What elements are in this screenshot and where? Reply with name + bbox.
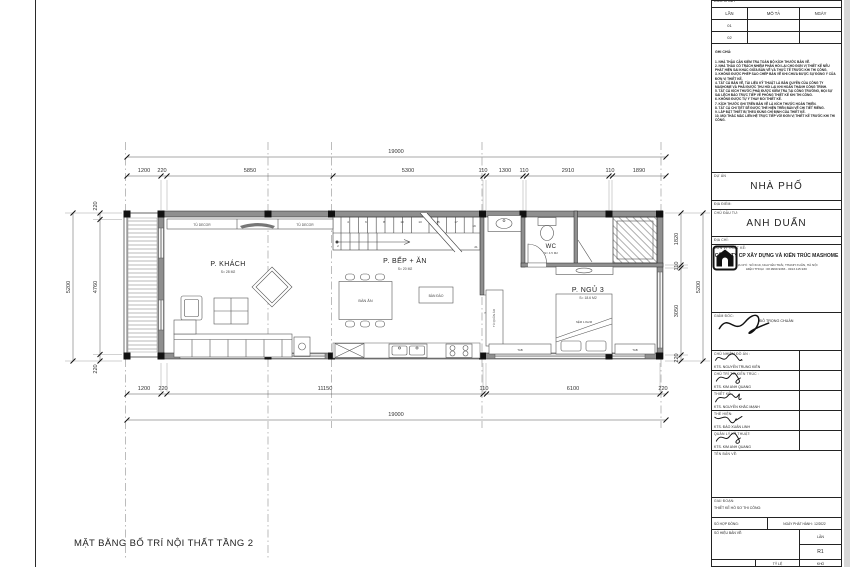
revision-1-ngay bbox=[800, 20, 841, 31]
staff-row-1: CHỦ TRÌ T.K KIẾN TRÚC : KTS. KIM ANH QUA… bbox=[712, 371, 841, 391]
project-name: NHÀ PHỐ bbox=[712, 173, 841, 200]
stair-num: 19 bbox=[472, 224, 476, 228]
stair-num: 10 bbox=[400, 220, 404, 224]
dim: 2910 bbox=[562, 168, 574, 174]
stairs bbox=[333, 213, 480, 252]
revision-caption-row: ĐIỀU CHỈNH bbox=[712, 1, 841, 8]
stair-num: 15 bbox=[436, 220, 440, 224]
kitchen-furniture bbox=[333, 274, 480, 358]
company-logo bbox=[712, 245, 738, 271]
revision-header-row: LẦN MÔ TẢ NGÀY bbox=[712, 8, 841, 20]
dim: 110 bbox=[606, 168, 615, 174]
dim-top-overall: 19000 bbox=[388, 149, 404, 155]
console bbox=[556, 267, 613, 275]
dim: 5200 bbox=[66, 281, 72, 293]
label-tu-quan-ao: TỦ QUẦN ÁO bbox=[491, 308, 496, 327]
dim: 220 bbox=[93, 201, 99, 210]
balcony bbox=[124, 211, 158, 359]
chair bbox=[376, 274, 385, 280]
sheet-number-label: SỐ HIỆU BẢN VẼ: bbox=[712, 530, 800, 559]
staff-name: KTS. KIM ANH QUANG bbox=[714, 445, 751, 449]
dim: 3050 bbox=[674, 305, 680, 317]
label-tu-decor-left: TỦ DECOR bbox=[193, 222, 211, 227]
scale-empty-cell bbox=[712, 560, 756, 567]
staff-name: KTS. NGUYỄN TRUNG KIÊN bbox=[714, 365, 760, 369]
revision-col-ngay: NGÀY bbox=[800, 8, 841, 19]
staff-signature bbox=[712, 411, 744, 425]
stair-num: 13 bbox=[418, 220, 422, 224]
staff-signature bbox=[712, 371, 744, 385]
staff-name: KTS. KIM ANH QUANG bbox=[714, 385, 751, 389]
living-room-furniture bbox=[167, 219, 333, 357]
dim: 220 bbox=[158, 386, 167, 392]
dim-bottom-overall: 19000 bbox=[388, 412, 404, 418]
notes-title: GHI CHÚ: bbox=[715, 50, 838, 55]
void-hatch bbox=[613, 217, 657, 263]
dim: 4760 bbox=[93, 281, 99, 293]
drawing-name-label: TÊN BẢN VẼ: bbox=[714, 452, 737, 456]
title-block: ĐIỀU CHỈNH LẦN MÔ TẢ NGÀY 01 02 GHI CHÚ:… bbox=[711, 0, 842, 567]
toilet bbox=[538, 218, 556, 226]
chair bbox=[361, 274, 370, 280]
drawing-name-box: TÊN BẢN VẼ: bbox=[712, 451, 841, 498]
issue-date: NGÀY PHÁT HÀNH : 12/2022 bbox=[768, 518, 841, 529]
dim: 1300 bbox=[499, 168, 511, 174]
location-row: ĐỊA ĐIỂM: bbox=[712, 201, 841, 210]
revision-count-label: LẦN bbox=[800, 530, 841, 545]
door-leaf bbox=[578, 240, 592, 262]
dim: 6100 bbox=[567, 386, 579, 392]
revision-2-ngay bbox=[800, 32, 841, 43]
director-signature bbox=[712, 313, 776, 335]
room-label-bedroom: P. NGỦ 3 bbox=[572, 285, 604, 294]
dim: 5200 bbox=[696, 281, 702, 293]
cooktop bbox=[446, 344, 472, 358]
address-row: ĐỊA CHỈ: bbox=[712, 237, 841, 245]
chair bbox=[376, 321, 385, 327]
revision-row-2: 02 bbox=[712, 32, 841, 44]
dim: 1200 bbox=[138, 386, 150, 392]
drawing-sheet: 19000 1200 220 5850 5300 110 1300 110 29… bbox=[0, 0, 850, 567]
room-area-bedroom: S= 18.6 M2 bbox=[579, 296, 597, 300]
dim: 110 bbox=[520, 168, 529, 174]
end-table bbox=[294, 337, 310, 356]
drawing-title: MẶT BẰNG BỐ TRÍ NỘI THẤT TẦNG 2 bbox=[74, 538, 253, 549]
washbasin-counter bbox=[488, 216, 521, 232]
address-label: ĐỊA CHỈ: bbox=[714, 238, 729, 242]
room-area-living: S= 28 M2 bbox=[221, 270, 236, 274]
director-row: GIÁM ĐỐC: ĐỖ TRỌNG CHUẨN bbox=[712, 313, 841, 351]
pillow bbox=[561, 341, 581, 351]
dim: 11150 bbox=[318, 386, 333, 392]
client-row: CHỦ ĐẦU TƯ: ANH DUẤN bbox=[712, 210, 841, 237]
dim: 5850 bbox=[244, 168, 256, 174]
stage-row: GIAI ĐOẠN: THIẾT KẾ HỒ SƠ THI CÔNG: bbox=[712, 498, 841, 518]
staff-row-2: THIẾT KẾ : KTS. NGUYỄN KHẮC MẠNH bbox=[712, 391, 841, 411]
notes-text: 1. NHÀ THẦU CẦN KIỂM TRA TOÀN BỘ KÍCH TH… bbox=[715, 60, 838, 122]
revision-row-1: 01 bbox=[712, 20, 841, 32]
revision-col-lan: LẦN bbox=[712, 8, 748, 19]
dim: 1200 bbox=[138, 168, 150, 174]
revision-1-mota bbox=[748, 20, 800, 31]
size-label: KHỔ bbox=[800, 560, 841, 567]
staff-row-0: CHỦ NHIỆM ĐỒ ÁN : KTS. NGUYỄN TRUNG KIÊN bbox=[712, 351, 841, 371]
scale-label: TỶ LỆ bbox=[756, 560, 800, 567]
room-area-kitchen: S= 20 M2 bbox=[398, 267, 413, 271]
staff-signature bbox=[712, 431, 744, 445]
notes-block: GHI CHÚ: 1. NHÀ THẦU CẦN KIỂM TRA TOÀN B… bbox=[712, 44, 841, 173]
label-bed: NỆM 1.8x2M bbox=[576, 319, 593, 324]
dim: 220 bbox=[658, 386, 667, 392]
stage-value: THIẾT KẾ HỒ SƠ THI CÔNG: bbox=[714, 506, 761, 510]
stair-num: 17 bbox=[454, 220, 458, 224]
dim: 220 bbox=[157, 168, 166, 174]
stair-num: 4 bbox=[347, 220, 349, 224]
label-tab-left: TAB bbox=[517, 348, 522, 352]
chair bbox=[346, 321, 355, 327]
stair-numbers: 2 4 6 8 10 13 15 17 19 21 bbox=[337, 220, 478, 249]
chair bbox=[361, 321, 370, 327]
sheet-number-row: SỐ HIỆU BẢN VẼ: LẦN R1 bbox=[712, 530, 841, 560]
project-label: DỰ ÁN bbox=[714, 174, 726, 178]
revision-caption: ĐIỀU CHỈNH bbox=[714, 1, 735, 3]
dim: 5300 bbox=[402, 168, 414, 174]
staff-row-3: THỂ HIỆN: KTS. ĐÀO XUÂN LINH bbox=[712, 411, 841, 431]
design-firm-row: ĐƠN VỊ THIẾT KẾ: CÔNG TY CP XÂY DỰNG VÀ … bbox=[712, 245, 841, 313]
label-ban-an: BÀN ĂN bbox=[358, 299, 372, 303]
room-label-wc: WC bbox=[546, 244, 557, 250]
contract-label: SỐ HỢP ĐỒNG: bbox=[712, 518, 768, 529]
staff-signature bbox=[712, 391, 744, 405]
dim: 110 bbox=[674, 262, 680, 271]
project-row: DỰ ÁN NHÀ PHỐ bbox=[712, 173, 841, 201]
stair-num: 2 bbox=[337, 244, 339, 248]
dim: 1890 bbox=[633, 168, 645, 174]
dim: 110 bbox=[480, 386, 489, 392]
contract-row: SỐ HỢP ĐỒNG: NGÀY PHÁT HÀNH : 12/2022 bbox=[712, 518, 841, 530]
scale-row: TỶ LỆ KHỔ bbox=[712, 560, 841, 567]
label-tab-right: TAB bbox=[632, 348, 637, 352]
chair bbox=[346, 274, 355, 280]
staff-signature bbox=[712, 351, 744, 365]
revision-2-mota bbox=[748, 32, 800, 43]
dim: 220 bbox=[93, 364, 99, 373]
room-label-kitchen: P. BẾP + ĂN bbox=[383, 255, 427, 265]
stair-num: 21 bbox=[474, 245, 478, 249]
dim: 1820 bbox=[674, 233, 680, 245]
label-tu-decor-right: TỦ DECOR bbox=[296, 222, 314, 227]
label-ban-dao: BÀN ĐẢO bbox=[429, 293, 444, 298]
location-label: ĐỊA ĐIỂM: bbox=[714, 202, 732, 206]
client-label: CHỦ ĐẦU TƯ: bbox=[714, 211, 738, 215]
revision-count-value: R1 bbox=[800, 545, 841, 559]
staff-name: KTS. ĐÀO XUÂN LINH bbox=[714, 425, 750, 429]
revision-1-lan: 01 bbox=[712, 20, 748, 31]
staff-row-4: QUẢN LÝ KỸ THUẬT: KTS. KIM ANH QUANG bbox=[712, 431, 841, 451]
revision-2-lan: 02 bbox=[712, 32, 748, 43]
revision-col-mota: MÔ TẢ bbox=[748, 8, 800, 19]
staff-name: KTS. NGUYỄN KHẮC MẠNH bbox=[714, 405, 760, 409]
dim: 110 bbox=[479, 168, 488, 174]
room-label-living: P. KHÁCH bbox=[210, 259, 245, 268]
side-table-diamond bbox=[252, 267, 292, 307]
dim: 220 bbox=[674, 353, 680, 362]
room-area-wc: S= 4.5 M2 bbox=[544, 251, 558, 255]
stage-label: GIAI ĐOẠN: bbox=[714, 499, 734, 503]
stair-num: 6 bbox=[365, 220, 367, 224]
sofa-chaise bbox=[174, 320, 196, 334]
pillow bbox=[586, 341, 606, 351]
